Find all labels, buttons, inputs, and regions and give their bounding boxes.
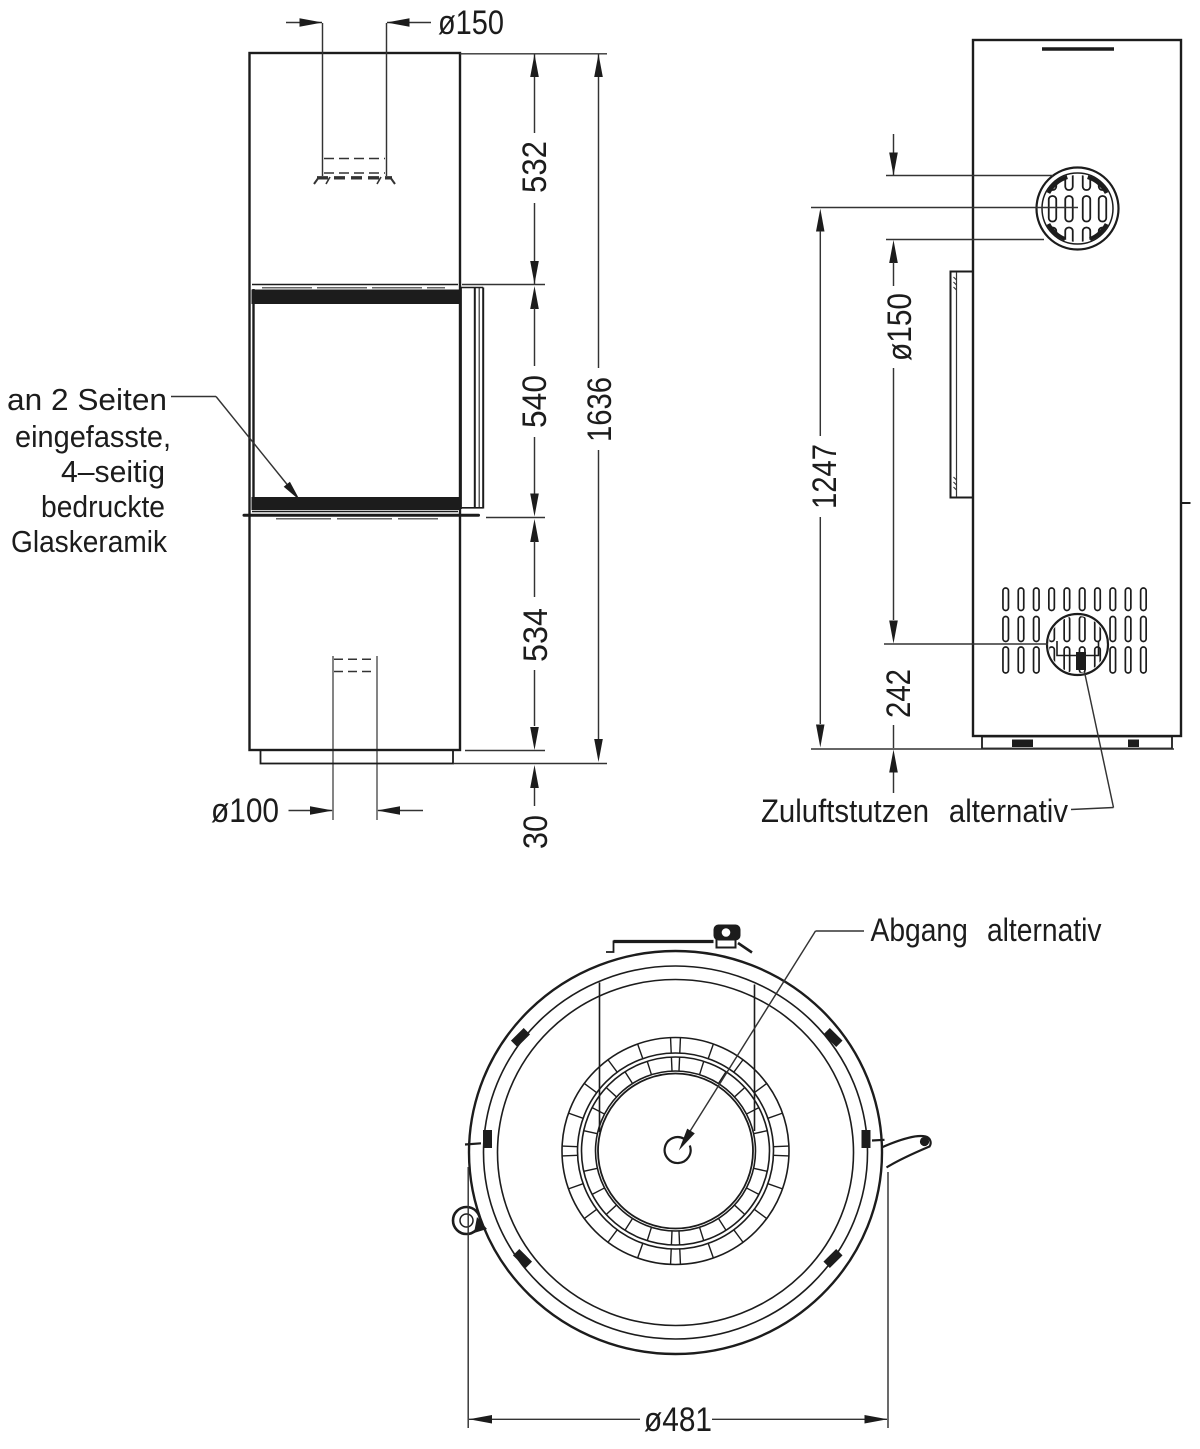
svg-text:1636: 1636 <box>581 377 619 442</box>
svg-text:532: 532 <box>516 141 554 193</box>
svg-text:242: 242 <box>880 669 918 718</box>
svg-text:1247: 1247 <box>806 444 844 509</box>
svg-text:eingefasste,: eingefasste, <box>15 419 171 454</box>
svg-text:30: 30 <box>517 815 555 849</box>
svg-text:ø150: ø150 <box>881 293 919 361</box>
svg-text:an 2 Seiten: an 2 Seiten <box>7 382 167 417</box>
svg-text:540: 540 <box>516 375 554 428</box>
svg-text:534: 534 <box>517 608 555 662</box>
svg-text:ø481: ø481 <box>644 1401 712 1439</box>
svg-text:ø150: ø150 <box>438 4 504 42</box>
svg-text:bedruckte: bedruckte <box>41 489 165 524</box>
svg-text:ø100: ø100 <box>211 792 279 830</box>
svg-text:Abgang alternativ: Abgang alternativ <box>871 912 1102 948</box>
svg-text:4–seitig: 4–seitig <box>61 454 165 489</box>
svg-text:Glaskeramik: Glaskeramik <box>11 524 167 559</box>
svg-text:Zuluftstutzen alternativ: Zuluftstutzen alternativ <box>761 793 1068 829</box>
